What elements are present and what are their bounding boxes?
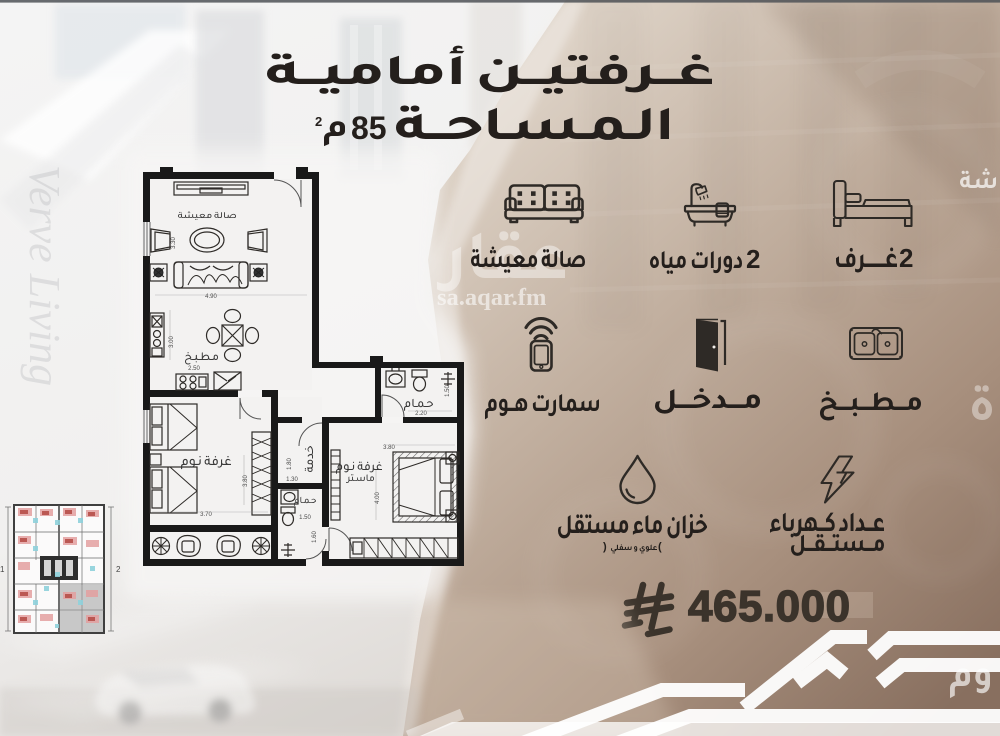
- svg-text:3.80: 3.80: [383, 445, 395, 451]
- svg-text:1.50: 1.50: [299, 515, 311, 521]
- svg-text:465.000: 465.000: [688, 582, 851, 631]
- svg-text:2.50: 2.50: [188, 366, 200, 372]
- svg-text:1.30: 1.30: [286, 477, 298, 483]
- svg-text:85: 85: [351, 110, 387, 146]
- svg-text:2.20: 2.20: [415, 411, 427, 417]
- svg-text:(: (: [658, 541, 662, 553]
- svg-text:2: 2: [116, 565, 121, 574]
- svg-text:2: 2: [315, 114, 322, 129]
- svg-text:): ): [603, 541, 607, 553]
- svg-text:1.50: 1.50: [445, 385, 451, 397]
- svg-text:1.60: 1.60: [312, 531, 318, 543]
- svg-text:Verve Living: Verve Living: [20, 165, 69, 386]
- svg-text:1: 1: [0, 565, 5, 574]
- svg-text:2: 2: [899, 243, 913, 273]
- svg-text:3.30: 3.30: [171, 237, 177, 249]
- svg-text:1.80: 1.80: [287, 458, 293, 470]
- svg-text:2: 2: [746, 244, 760, 274]
- svg-text:sa.aqar.fm: sa.aqar.fm: [437, 284, 546, 311]
- svg-text:3.70: 3.70: [200, 512, 212, 518]
